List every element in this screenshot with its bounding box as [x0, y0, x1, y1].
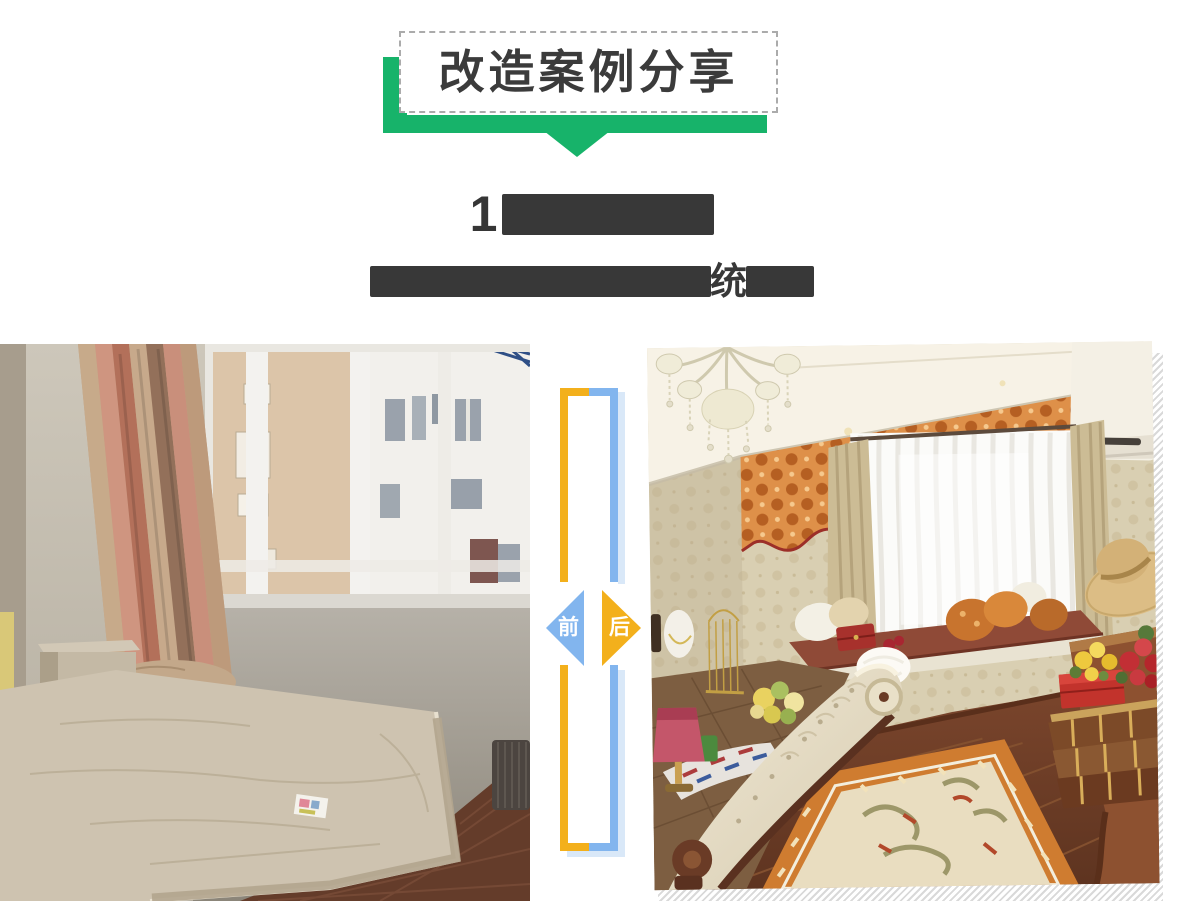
frame-left-upper — [560, 388, 568, 582]
before-label: 前 — [558, 617, 579, 638]
book-stack — [1048, 699, 1158, 809]
headline-visible-prefix: 1 — [470, 193, 498, 235]
headline-line2: 统 — [0, 261, 1184, 301]
frame-left-lower — [560, 665, 568, 851]
banner-dashed-box: 改造案例分享 — [399, 31, 778, 113]
after-photo-scene — [647, 341, 1160, 890]
frame-shadow-top — [618, 392, 625, 584]
headline-line1: 1 — [0, 189, 1184, 239]
frame-shadow-bottom-right — [618, 670, 625, 855]
after-photo-wrap — [650, 344, 1184, 901]
subheadline-visible-fragment: 统 — [710, 266, 747, 297]
before-photo-scene — [0, 344, 530, 901]
subheadline-redacted-block-right — [746, 266, 814, 297]
after-label: 后 — [609, 617, 630, 638]
frame-right-upper — [610, 388, 618, 582]
frame-right-lower — [610, 665, 618, 851]
before-photo — [0, 344, 530, 901]
frame-shadow-bottom — [567, 851, 625, 857]
subheadline-redacted-block-left — [370, 266, 711, 297]
frame-bottom-right — [589, 843, 618, 851]
headline-redacted-block — [502, 194, 714, 235]
banner-pointer-triangle-icon — [544, 131, 610, 157]
after-photo — [647, 341, 1160, 890]
frame-bottom-left — [560, 843, 589, 851]
banner-title: 改造案例分享 — [439, 49, 739, 95]
